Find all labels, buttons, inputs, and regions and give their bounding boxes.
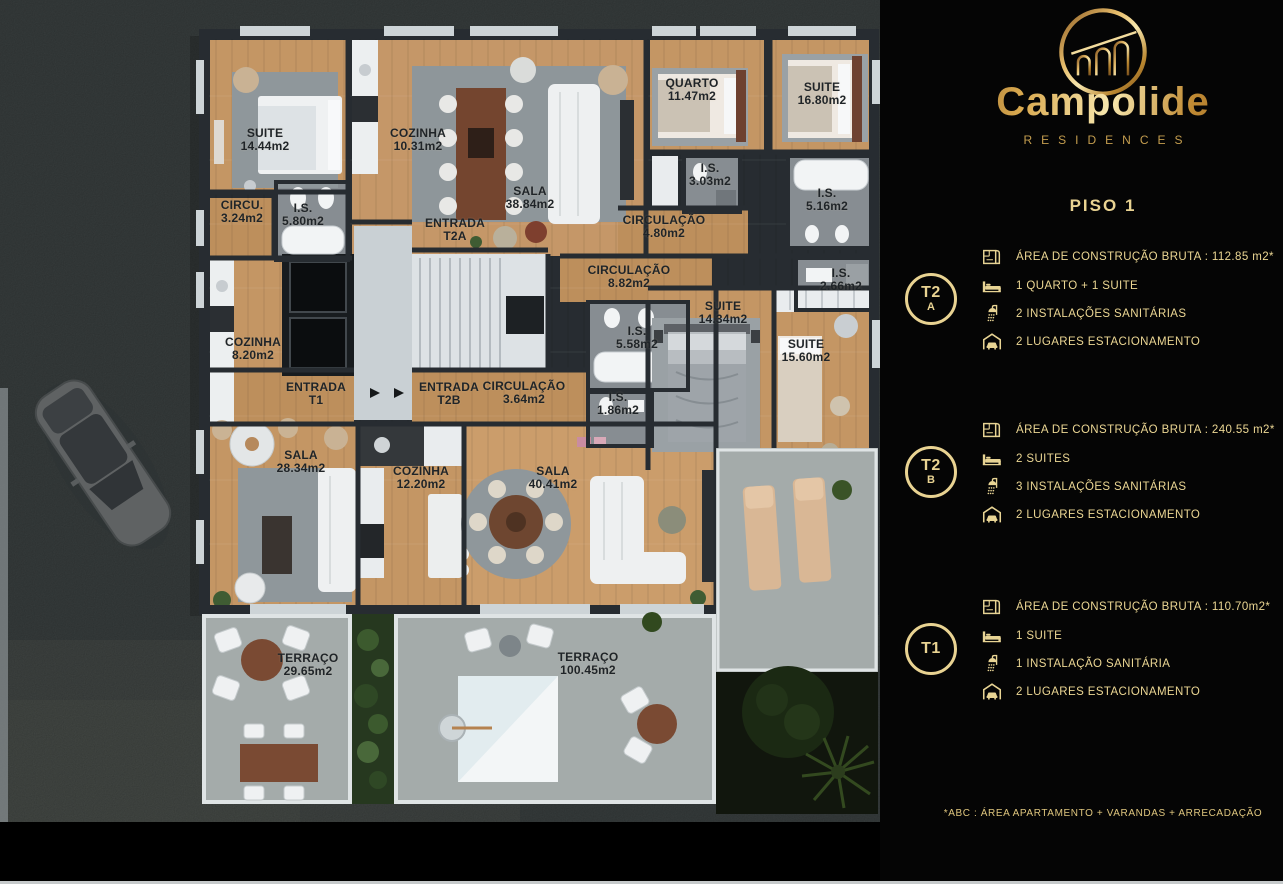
room-label-suite-1444: SUITE14.44m2	[241, 127, 290, 153]
unit-spec-text: ÁREA DE CONSTRUÇÃO BRUTA : 110.70m2*	[1016, 601, 1270, 613]
room-label-circu-324: CIRCU.3.24m2	[221, 199, 264, 225]
unit-badge-label: T2	[921, 458, 941, 474]
unit-block-t2a: T2 A ÁREA DE CONSTRUÇÃO BRUTA : 112.85 m…	[880, 243, 1283, 373]
unit-block-t2b: T2 B ÁREA DE CONSTRUÇÃO BRUTA : 240.55 m…	[880, 416, 1283, 546]
hedge-planter	[352, 614, 394, 804]
room-label-is-516: I.S.5.16m2	[806, 187, 848, 213]
room-label-terraco-10045: TERRAÇO100.45m2	[558, 651, 619, 677]
unit-spec-text: 2 LUGARES ESTACIONAMENTO	[1016, 686, 1200, 698]
unit-spec-text: 1 INSTALAÇÃO SANITÁRIA	[1016, 658, 1170, 670]
bed-icon	[980, 448, 1004, 470]
area-plan-icon	[980, 246, 1004, 268]
room-label-entrada-t2b: ENTRADAT2B	[419, 381, 479, 407]
room-label-circulacao-364: CIRCULAÇÃO3.64m2	[483, 380, 566, 406]
room-label-sala-4041: SALA40.41m2	[529, 465, 578, 491]
unit-spec-row: 1 INSTALAÇÃO SANITÁRIA	[980, 650, 1280, 678]
room-label-cozinha-1031: COZINHA10.31m2	[390, 127, 446, 153]
unit-badge-sublabel: A	[927, 302, 935, 313]
room-label-quarto-1147: QUARTO11.47m2	[666, 77, 719, 103]
unit-spec-text: ÁREA DE CONSTRUÇÃO BRUTA : 240.55 m2*	[1016, 424, 1275, 436]
unit-spec-row: 2 LUGARES ESTACIONAMENTO	[980, 328, 1280, 356]
sidewalk-edge	[0, 388, 8, 822]
brand-subtitle: RESIDENCES	[920, 133, 1283, 147]
unit-spec-text: ÁREA DE CONSTRUÇÃO BRUTA : 112.85 m2*	[1016, 251, 1274, 263]
unit-spec-row: 2 INSTALAÇÕES SANITÁRIAS	[980, 300, 1280, 328]
unit-spec-row: 2 LUGARES ESTACIONAMENTO	[980, 678, 1280, 706]
unit-badge-t2a: T2 A	[905, 273, 957, 325]
unit-badge-t2b: T2 B	[905, 446, 957, 498]
unit-spec-row: 2 SUITES	[980, 444, 1280, 472]
unit-badge-sublabel: B	[927, 475, 935, 486]
room-label-circulacao-882: CIRCULAÇÃO8.82m2	[588, 264, 671, 290]
unit-spec-text: 2 LUGARES ESTACIONAMENTO	[1016, 509, 1200, 521]
room-label-suite-1434: SUITE14.34m2	[699, 300, 748, 326]
unit-badge-t1: T1	[905, 623, 957, 675]
kitchen-t2a	[352, 40, 378, 174]
brand-name: Campolide	[920, 80, 1283, 125]
room-label-suite-1680: SUITE16.80m2	[798, 81, 847, 107]
room-label-entrada-t2a: ENTRADAT2A	[425, 217, 485, 243]
floor-plan: SUITE14.44m2 COZINHA10.31m2 SALA38.84m2 …	[0, 0, 880, 884]
unit-spec-row: 3 INSTALAÇÕES SANITÁRIAS	[980, 473, 1280, 501]
wardrobe-quarto	[652, 156, 678, 210]
garage-car-icon	[980, 504, 1004, 526]
unit-spec-text: 3 INSTALAÇÕES SANITÁRIAS	[1016, 481, 1186, 493]
room-label-sala-3884: SALA38.84m2	[506, 185, 555, 211]
unit-block-t1: T1 ÁREA DE CONSTRUÇÃO BRUTA : 110.70m2* …	[880, 593, 1283, 723]
unit-spec-row: ÁREA DE CONSTRUÇÃO BRUTA : 112.85 m2*	[980, 243, 1280, 271]
room-label-entrada-t1: ENTRADAT1	[286, 381, 346, 407]
staircase	[412, 254, 548, 372]
area-plan-icon	[980, 596, 1004, 618]
bed-icon	[980, 275, 1004, 297]
unit-spec-text: 1 SUITE	[1016, 630, 1062, 642]
area-plan-icon	[980, 419, 1004, 441]
unit-spec-text: 2 SUITES	[1016, 453, 1070, 465]
bed-suite-1434	[652, 318, 760, 452]
room-label-is-558: I.S.5.58m2	[616, 325, 658, 351]
unit-spec-row: 1 SUITE	[980, 621, 1280, 649]
room-label-cozinha-820: COZINHA8.20m2	[225, 336, 281, 362]
unit-spec-row: ÁREA DE CONSTRUÇÃO BRUTA : 240.55 m2*	[980, 416, 1280, 444]
unit-badge-label: T2	[921, 285, 941, 301]
unit-spec-row: 1 QUARTO + 1 SUITE	[980, 271, 1280, 299]
room-label-sala-2834: SALA28.34m2	[277, 449, 326, 475]
room-label-suite-1560: SUITE15.60m2	[782, 338, 831, 364]
room-label-is-266: I.S.2.66m2	[820, 267, 862, 293]
brochure-page: SUITE14.44m2 COZINHA10.31m2 SALA38.84m2 …	[0, 0, 1283, 884]
unit-spec-row: 2 LUGARES ESTACIONAMENTO	[980, 501, 1280, 529]
floor-title: PISO 1	[920, 196, 1283, 216]
room-label-is-303: I.S.3.03m2	[689, 162, 731, 188]
unit-spec-row: ÁREA DE CONSTRUÇÃO BRUTA : 110.70m2*	[980, 593, 1280, 621]
room-label-is-580: I.S.5.80m2	[282, 202, 324, 228]
info-panel: Campolide RESIDENCES PISO 1 T2 A ÁREA DE…	[880, 0, 1283, 884]
room-label-is-186: I.S.1.86m2	[597, 391, 639, 417]
unit-spec-text: 1 QUARTO + 1 SUITE	[1016, 280, 1138, 292]
garden	[716, 666, 878, 814]
room-label-terraco-2965: TERRAÇO29.65m2	[278, 652, 339, 678]
shower-icon	[980, 653, 1004, 675]
bed-icon	[980, 625, 1004, 647]
unit-spec-text: 2 INSTALAÇÕES SANITÁRIAS	[1016, 308, 1186, 320]
shower-icon	[980, 303, 1004, 325]
footnote: *ABC : ÁREA APARTAMENTO + VARANDAS + ARR…	[920, 808, 1283, 819]
garage-car-icon	[980, 331, 1004, 353]
unit-spec-text: 2 LUGARES ESTACIONAMENTO	[1016, 336, 1200, 348]
room-label-cozinha-1220: COZINHA12.20m2	[393, 465, 449, 491]
shower-icon	[980, 476, 1004, 498]
garage-car-icon	[980, 681, 1004, 703]
room-label-circulacao-480: CIRCULAÇÃO4.80m2	[623, 214, 706, 240]
unit-badge-label: T1	[921, 641, 941, 657]
